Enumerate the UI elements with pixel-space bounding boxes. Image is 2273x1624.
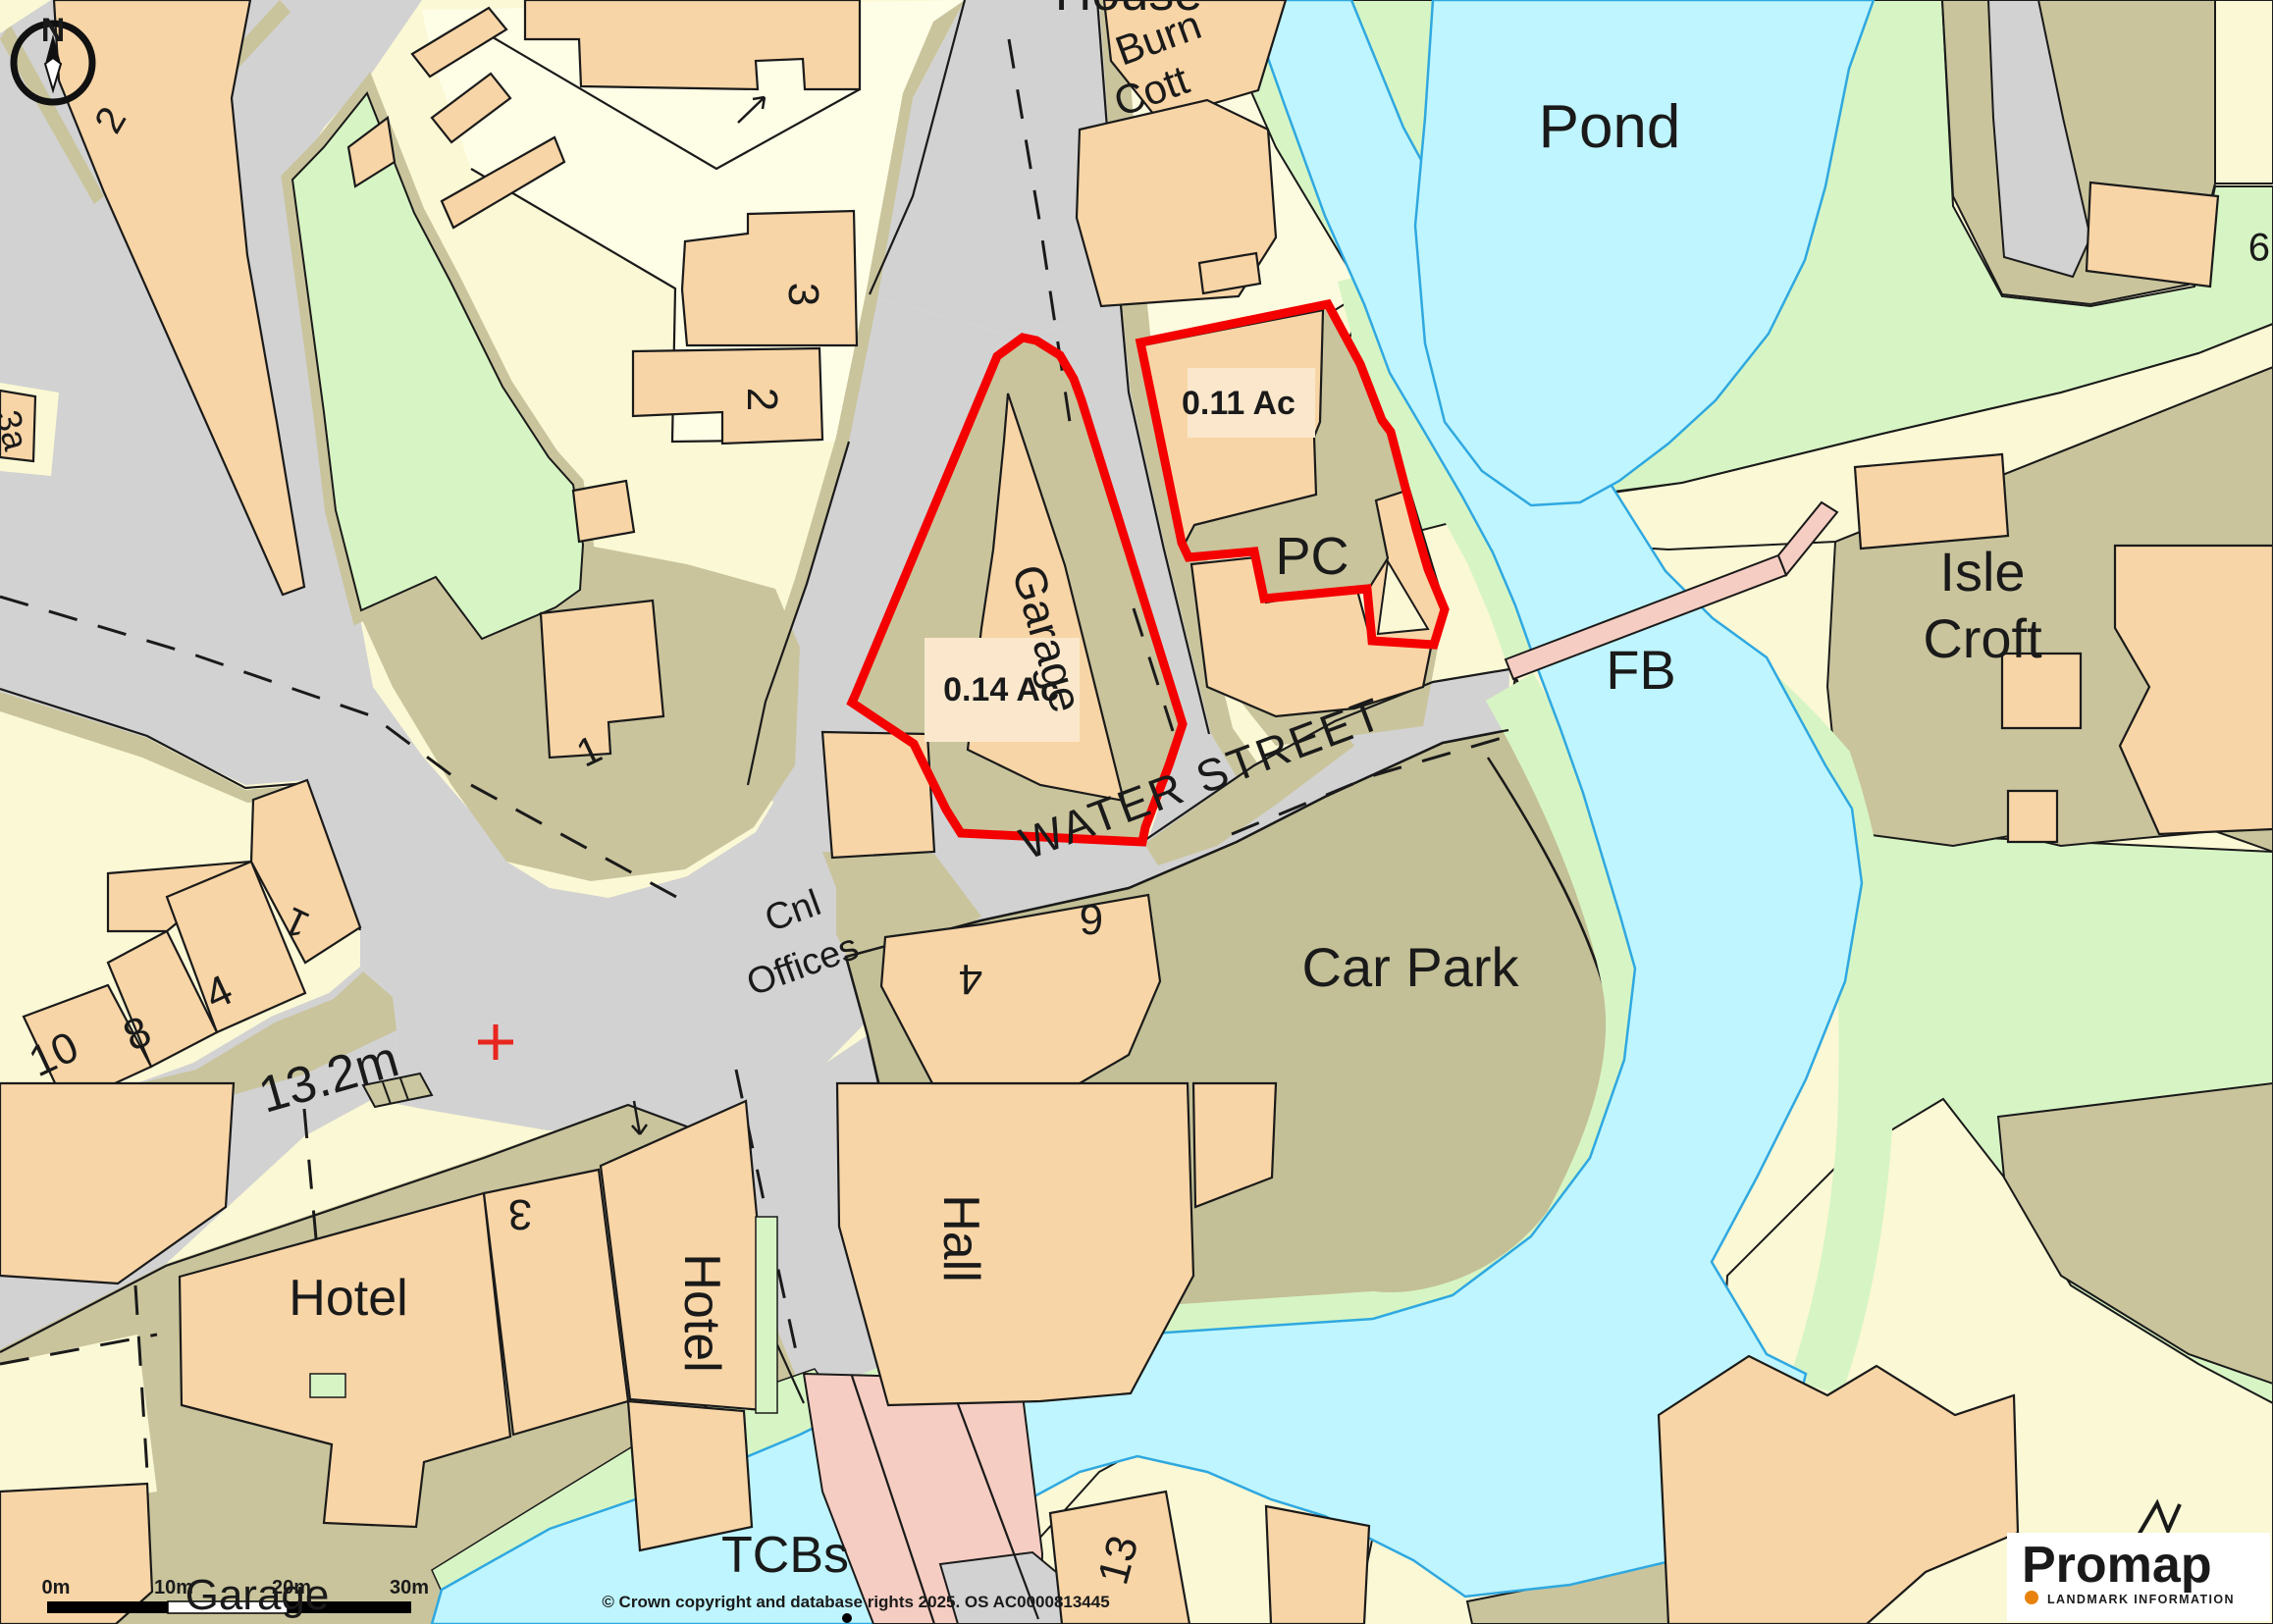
svg-text:Hotel: Hotel: [673, 1253, 730, 1372]
svg-text:Hotel: Hotel: [289, 1270, 407, 1327]
svg-text:2: 2: [738, 388, 786, 411]
svg-text:FB: FB: [1606, 639, 1676, 701]
svg-text:Promap: Promap: [2022, 1537, 2212, 1594]
svg-text:PC: PC: [1275, 527, 1348, 586]
svg-text:TCBs: TCBs: [721, 1527, 849, 1584]
svg-text:N: N: [41, 12, 66, 49]
svg-text:Garage: Garage: [185, 1571, 330, 1619]
svg-text:0.11 Ac: 0.11 Ac: [1182, 385, 1295, 422]
svg-text:LANDMARK INFORMATION: LANDMARK INFORMATION: [2047, 1593, 2235, 1606]
svg-text:© Crown copyright and database: © Crown copyright and database rights 20…: [602, 1593, 1109, 1611]
svg-text:3: 3: [508, 1190, 532, 1238]
svg-text:Pond: Pond: [1539, 93, 1681, 161]
svg-text:3: 3: [779, 283, 827, 306]
svg-text:Car Park: Car Park: [1302, 936, 1520, 998]
svg-text:0.14 Ac: 0.14 Ac: [943, 671, 1059, 708]
svg-text:Hall: Hall: [932, 1194, 989, 1283]
svg-text:9: 9: [2248, 225, 2270, 268]
svg-text:Isle: Isle: [1939, 541, 2025, 602]
svg-text:0m: 0m: [42, 1577, 71, 1598]
svg-text:6: 6: [1080, 895, 1103, 943]
svg-text:4: 4: [959, 955, 982, 1003]
svg-text:30m: 30m: [390, 1577, 429, 1598]
svg-text:Croft: Croft: [1923, 607, 2042, 669]
